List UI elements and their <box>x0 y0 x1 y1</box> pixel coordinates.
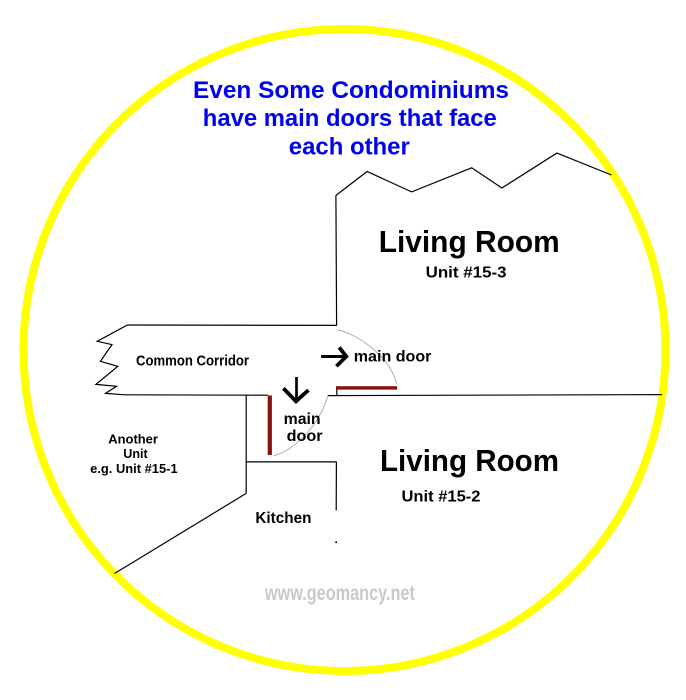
svg-text:Common Corridor: Common Corridor <box>136 352 249 369</box>
svg-text:Living Room: Living Room <box>380 444 559 478</box>
svg-text:main: main <box>284 411 321 428</box>
svg-text:www.geomancy.net: www.geomancy.net <box>264 582 415 605</box>
svg-text:Unit #15-3: Unit #15-3 <box>426 265 507 282</box>
svg-text:Kitchen: Kitchen <box>255 510 311 527</box>
svg-text:Even Some Condominiums: Even Some Condominiums <box>193 77 509 104</box>
svg-text:each other: each other <box>289 133 410 160</box>
svg-text:door: door <box>287 428 323 445</box>
svg-text:e.g. Unit #15-1: e.g. Unit #15-1 <box>90 461 178 476</box>
svg-text:Living Room: Living Room <box>379 225 560 259</box>
svg-text:Unit: Unit <box>123 446 148 461</box>
svg-text:main door: main door <box>354 349 432 366</box>
svg-text:Unit #15-2: Unit #15-2 <box>402 489 481 506</box>
svg-text:have main doors that face: have main doors that face <box>203 105 497 132</box>
svg-text:Another: Another <box>108 431 158 446</box>
